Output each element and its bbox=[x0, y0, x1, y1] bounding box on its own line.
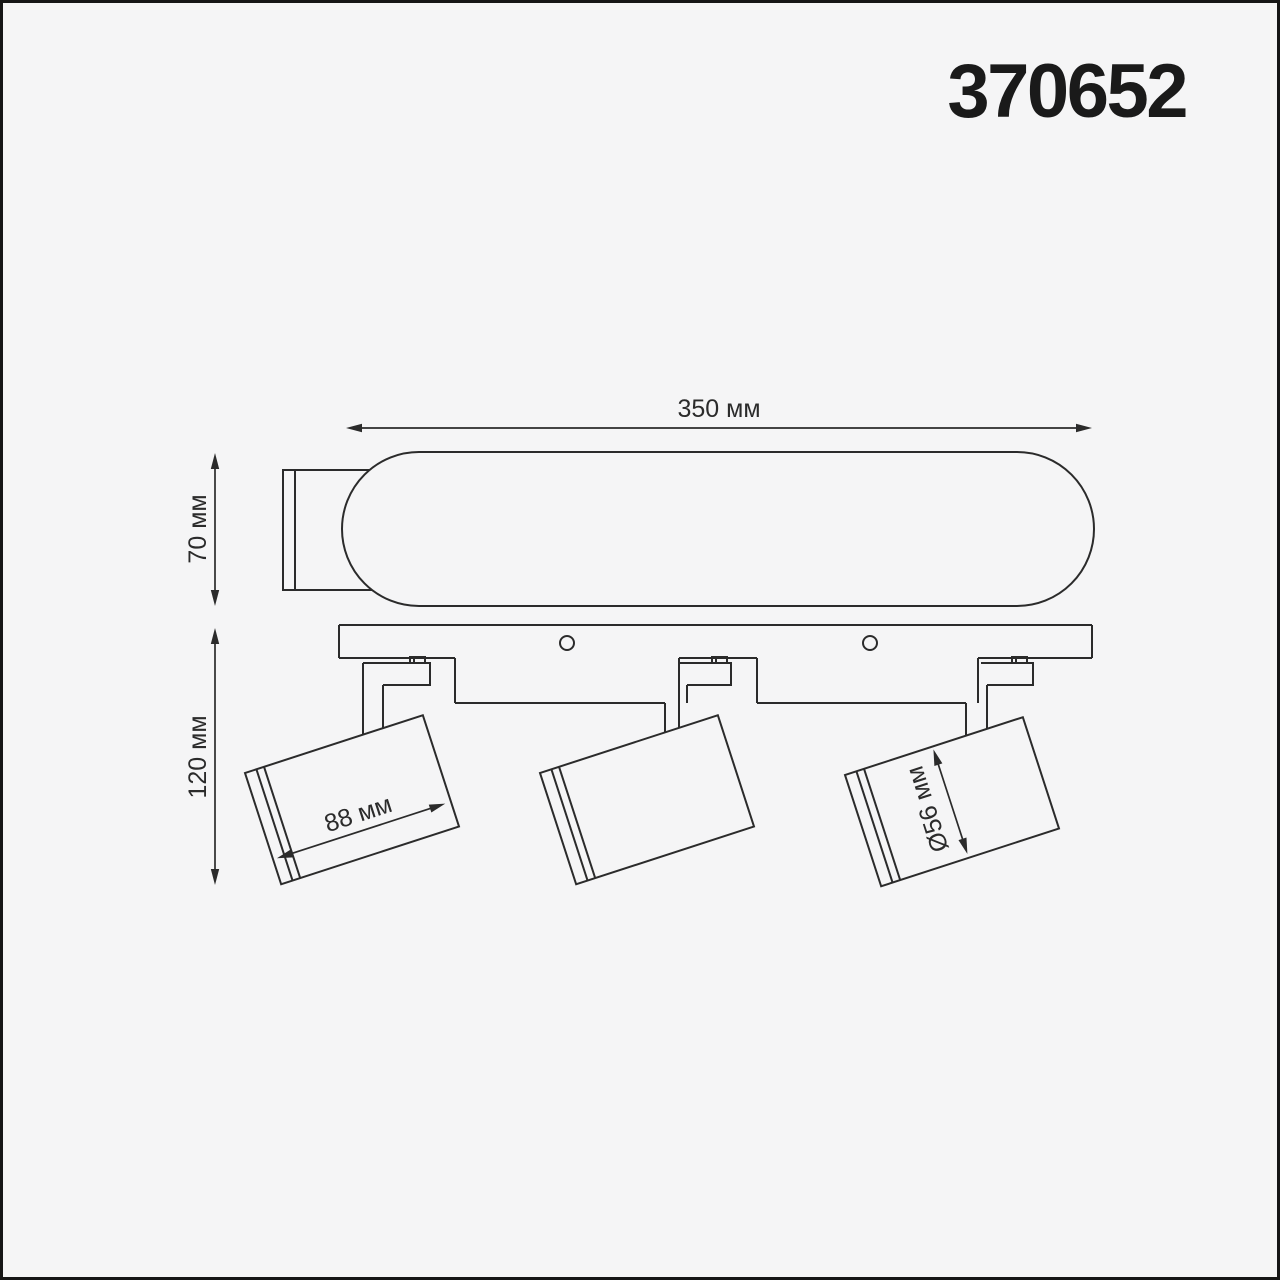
spotlight-left: 88 мм bbox=[245, 715, 459, 884]
screw-hole-right bbox=[863, 636, 877, 650]
dimension-bar-length: 350 мм bbox=[346, 395, 1092, 432]
arrowhead-up bbox=[211, 453, 219, 469]
arrowhead-down bbox=[211, 869, 219, 885]
dimension-bar-length-label: 350 мм bbox=[677, 395, 760, 423]
arrowhead-up bbox=[211, 628, 219, 644]
fixture-body-top-view bbox=[342, 452, 1094, 606]
product-code: 370652 bbox=[947, 49, 1186, 134]
arrowhead-down bbox=[211, 590, 219, 606]
dimension-spot-drop: 120 мм bbox=[184, 628, 219, 885]
spotlight-right: Ø56 мм bbox=[845, 717, 1059, 886]
arrowhead-right bbox=[1076, 424, 1092, 432]
dimension-body-height-label: 70 мм bbox=[184, 494, 212, 563]
technical-drawing: 370652 350 мм 70 мм 120 мм bbox=[0, 0, 1280, 1280]
spotlight-middle bbox=[540, 715, 754, 884]
arrowhead-left bbox=[346, 424, 362, 432]
screw-hole-left bbox=[560, 636, 574, 650]
dimension-spot-drop-label: 120 мм bbox=[184, 715, 212, 798]
dimension-body-height: 70 мм bbox=[184, 453, 219, 606]
